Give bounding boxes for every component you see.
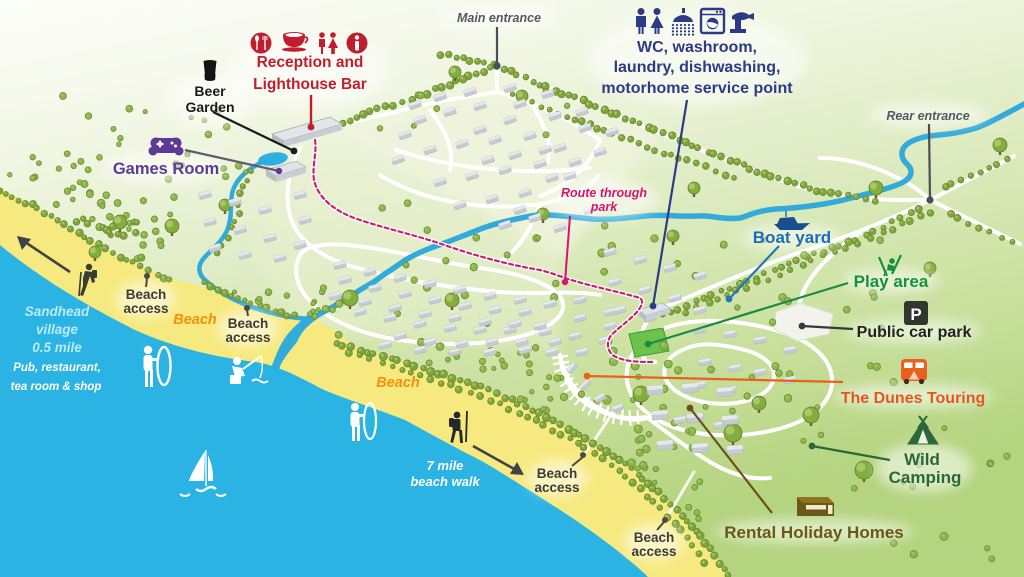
svg-text:Pub, restaurant,: Pub, restaurant, bbox=[13, 362, 101, 374]
svg-text:Beach: Beach bbox=[126, 287, 167, 302]
svg-text:0.5 mile: 0.5 mile bbox=[32, 340, 82, 355]
svg-text:Beach: Beach bbox=[376, 375, 420, 391]
svg-text:Route through: Route through bbox=[561, 186, 647, 200]
svg-text:park: park bbox=[590, 200, 618, 214]
svg-text:Main entrance: Main entrance bbox=[457, 11, 541, 25]
svg-text:access: access bbox=[123, 301, 168, 316]
svg-text:Beer: Beer bbox=[194, 83, 226, 99]
svg-text:Play area: Play area bbox=[854, 272, 929, 291]
svg-text:Beach: Beach bbox=[228, 316, 269, 331]
svg-text:Lighthouse Bar: Lighthouse Bar bbox=[253, 76, 367, 93]
svg-text:7 mile: 7 mile bbox=[427, 458, 464, 473]
svg-text:The Dunes Touring: The Dunes Touring bbox=[841, 390, 986, 407]
svg-text:tea room & shop: tea room & shop bbox=[11, 381, 102, 393]
svg-text:Rental Holiday Homes: Rental Holiday Homes bbox=[724, 523, 904, 542]
svg-text:Boat yard: Boat yard bbox=[753, 228, 831, 247]
svg-text:access: access bbox=[631, 544, 676, 559]
svg-text:laundry, dishwashing,: laundry, dishwashing, bbox=[614, 59, 781, 76]
svg-text:P: P bbox=[910, 305, 921, 324]
svg-text:Rear entrance: Rear entrance bbox=[886, 109, 969, 123]
svg-text:Wild: Wild bbox=[904, 450, 940, 469]
svg-text:village: village bbox=[36, 322, 79, 337]
svg-text:Beach: Beach bbox=[537, 466, 578, 481]
svg-text:access: access bbox=[225, 330, 270, 345]
svg-text:Reception and: Reception and bbox=[257, 54, 364, 71]
svg-text:WC, washroom,: WC, washroom, bbox=[637, 39, 757, 56]
svg-text:motorhome service point: motorhome service point bbox=[601, 80, 793, 97]
svg-text:access: access bbox=[534, 480, 579, 495]
svg-text:Beach: Beach bbox=[173, 312, 217, 328]
svg-text:Beach: Beach bbox=[634, 530, 675, 545]
svg-text:Camping: Camping bbox=[889, 468, 962, 487]
svg-text:Garden: Garden bbox=[185, 99, 234, 115]
svg-text:Public car park: Public car park bbox=[857, 324, 972, 341]
svg-text:beach walk: beach walk bbox=[410, 474, 480, 489]
svg-text:Games Room: Games Room bbox=[113, 160, 219, 178]
svg-text:Sandhead: Sandhead bbox=[25, 304, 90, 319]
